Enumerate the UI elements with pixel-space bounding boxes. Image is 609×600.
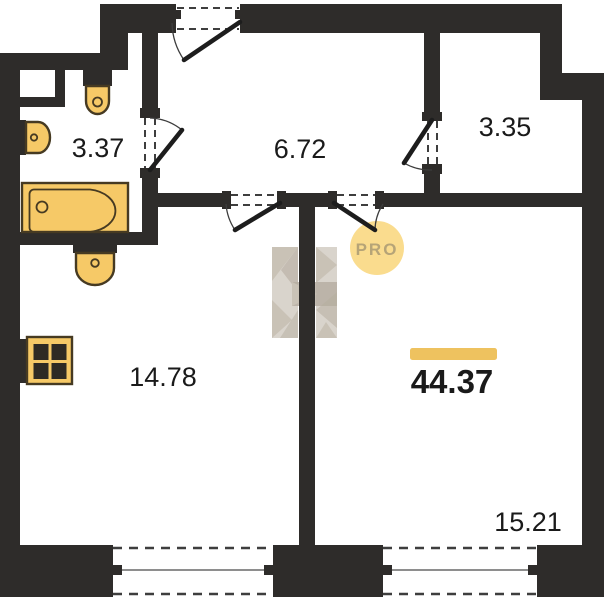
wall-segment-bottom	[537, 545, 604, 597]
stove-icon	[20, 337, 72, 384]
room-label-wardrobe: 3.35	[479, 112, 532, 142]
wall-hall-wardrobe	[424, 33, 440, 112]
wall-bathroom-bottom	[20, 232, 158, 245]
kitchen-door	[222, 191, 286, 230]
kitchen-sink-icon	[73, 245, 117, 285]
door-leaf	[404, 120, 432, 163]
room-door	[328, 191, 384, 230]
door-leaf	[235, 203, 280, 230]
wall-hall-room	[286, 193, 328, 207]
wall-hall-kitchen	[158, 193, 222, 207]
total-area-value: 44.37	[411, 363, 494, 400]
floor-plan: PRO	[0, 0, 609, 600]
washbasin-icon	[20, 120, 50, 155]
pro-badge-text: PRO	[356, 240, 399, 259]
bathroom-door	[140, 108, 182, 178]
bathtub-icon	[22, 183, 128, 232]
wall-kitchen-room	[299, 207, 315, 545]
room-label-kitchen: 14.78	[129, 362, 197, 392]
total-area: 44.37	[410, 348, 497, 400]
door-leaf	[184, 22, 240, 60]
door-post	[240, 4, 248, 33]
toilet-icon	[83, 70, 112, 114]
wall-segment-bottom	[0, 545, 113, 597]
entrance-door	[172, 8, 240, 60]
wall-bathroom-hall	[142, 33, 158, 108]
room-window	[383, 548, 537, 594]
wall-segment	[562, 73, 604, 100]
wall-segment	[100, 4, 168, 33]
door-leaf	[334, 203, 375, 230]
wall-segment-bottom	[273, 545, 383, 597]
shaft-wall	[20, 97, 65, 107]
total-area-accent-bar	[410, 348, 497, 360]
room-label-hallway: 6.72	[274, 134, 327, 164]
kitchen-window	[113, 548, 273, 594]
wardrobe-door	[404, 112, 442, 174]
wall-hall-wardrobe	[424, 174, 440, 193]
wall-segment	[540, 33, 562, 100]
room-label-room: 15.21	[494, 507, 562, 537]
wall-hall-room	[384, 193, 582, 207]
wall-segment-right	[582, 100, 604, 545]
wall-segment	[100, 33, 128, 53]
wall-segment	[248, 4, 562, 33]
room-label-bathroom: 3.37	[72, 133, 125, 163]
wall-bathroom-hall	[142, 178, 158, 232]
wall-segment	[0, 53, 128, 70]
wall-segment-left	[0, 70, 20, 545]
